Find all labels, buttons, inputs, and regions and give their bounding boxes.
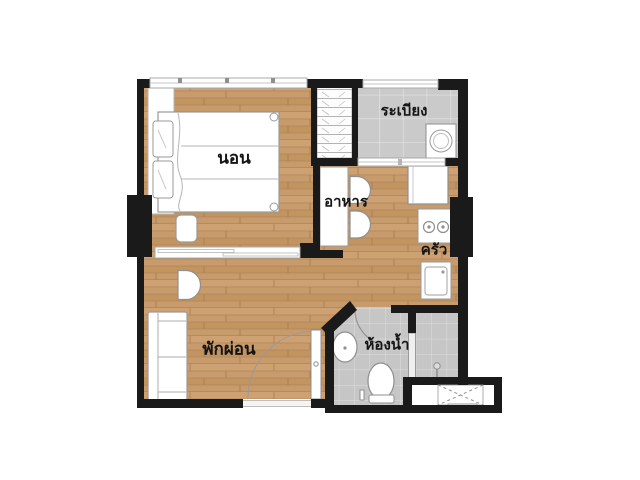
ac-condenser-cross-icon [438, 385, 483, 405]
bathroom-label: ห้องน้ำ [365, 333, 410, 354]
nightstand [176, 215, 197, 242]
wash-basin [333, 332, 357, 362]
wardrobe [317, 87, 352, 158]
structural-column [127, 195, 152, 257]
shower-glass-partition [409, 333, 416, 381]
dining-label: อาหาร [324, 194, 369, 211]
flush-valve-icon [360, 390, 364, 400]
kitchen-label: ครัว [421, 242, 448, 259]
dining-chair [350, 211, 370, 238]
floor-plan-page: นอน ระเบียง อาหาร ครัว พักผ่อน ห้องน้ำ [0, 0, 640, 480]
entrance-threshold [243, 400, 311, 407]
balcony-label: ระเบียง [381, 103, 428, 120]
floor-plan-drawing: นอน ระเบียง อาหาร ครัว พักผ่อน ห้องน้ำ [0, 0, 640, 480]
pillow [153, 161, 173, 198]
refrigerator [408, 166, 448, 204]
balcony-railing [363, 80, 438, 88]
living-label: พักผ่อน [202, 340, 256, 359]
balcony-sliding-door [358, 158, 445, 166]
stove-burner-icon [438, 222, 449, 233]
stove-burner-icon [424, 222, 435, 233]
structural-column [450, 197, 473, 257]
kitchen-sink [421, 262, 451, 299]
armchair [178, 271, 201, 300]
sofa [148, 312, 187, 400]
stove-counter [418, 209, 452, 243]
pillow [153, 121, 173, 157]
bedroom-label: นอน [217, 149, 251, 168]
sliding-partition [155, 247, 300, 258]
bedroom-window [150, 78, 307, 88]
washing-machine [426, 124, 456, 158]
